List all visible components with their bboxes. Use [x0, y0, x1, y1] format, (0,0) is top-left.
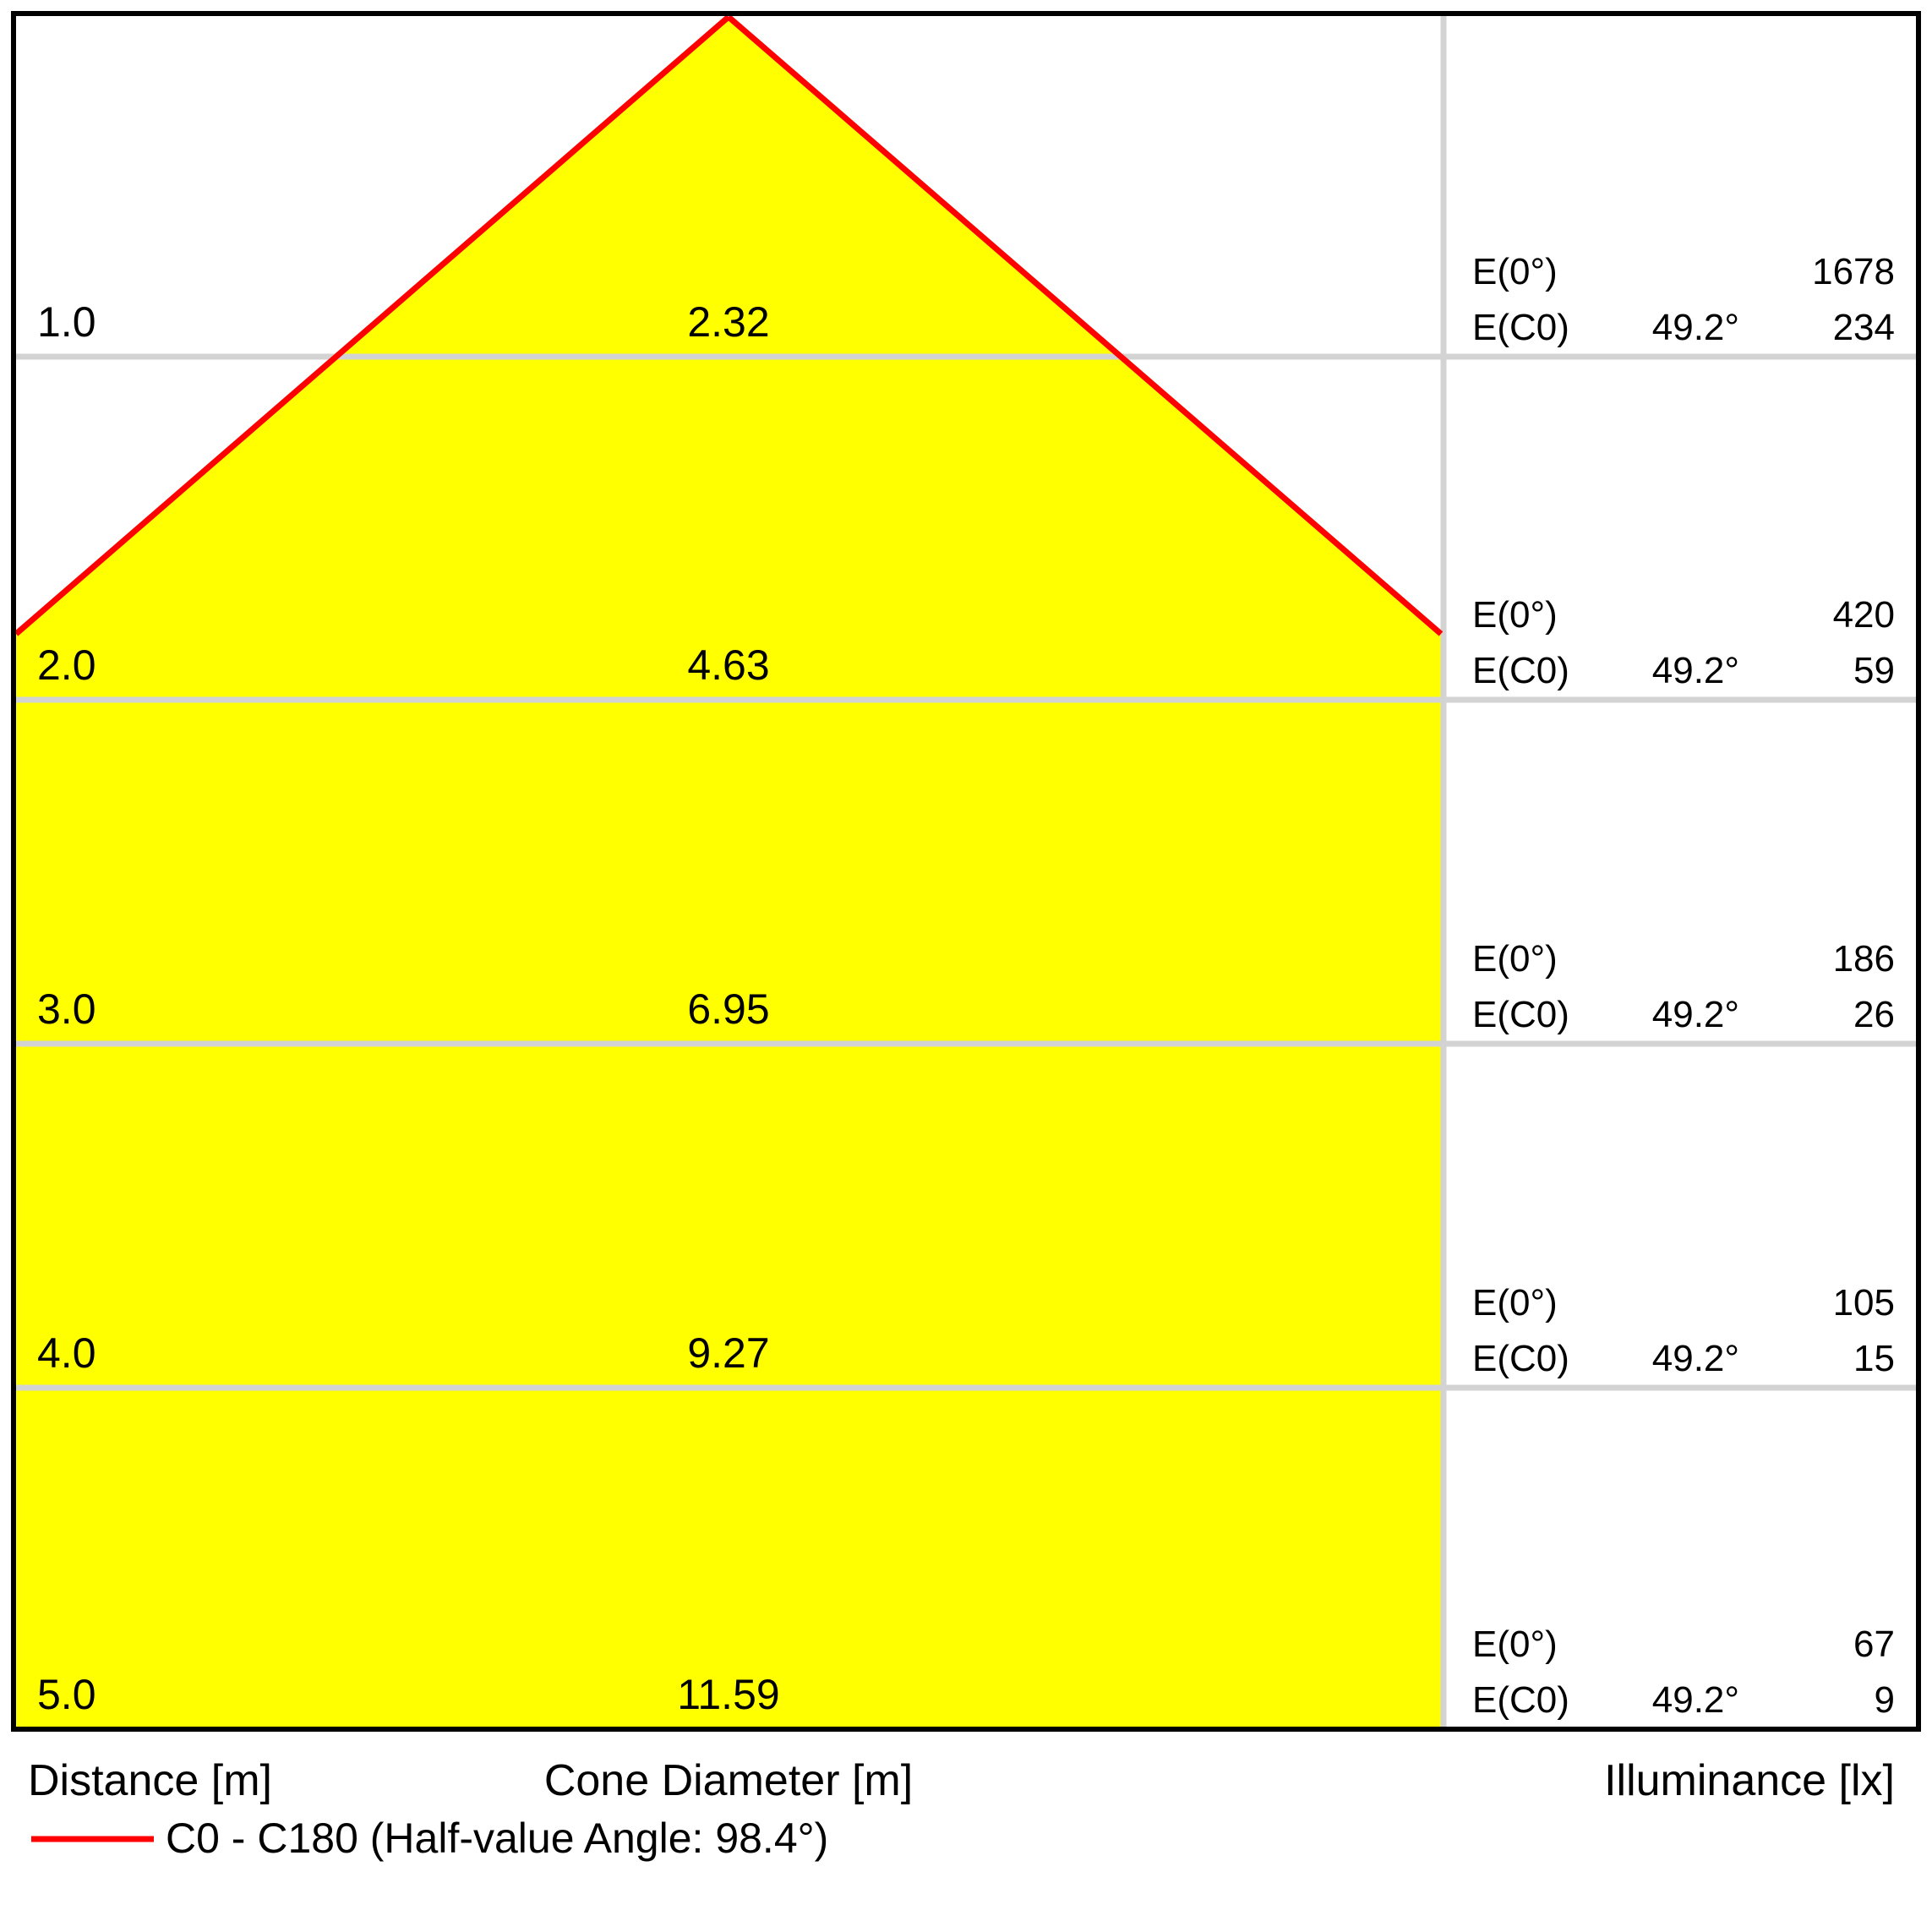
- e0-value: 186: [1833, 938, 1895, 980]
- cone-diameter-label: 6.95: [687, 985, 769, 1033]
- ec0-angle: 49.2°: [1652, 307, 1739, 348]
- ec0-value: 234: [1833, 307, 1895, 348]
- e0-label: E(0°): [1472, 1624, 1558, 1665]
- cone-diameter-label: 2.32: [687, 298, 769, 346]
- ec0-label: E(C0): [1472, 650, 1569, 691]
- distance-axis-title: Distance [m]: [28, 1756, 272, 1805]
- e0-value: 67: [1853, 1624, 1895, 1665]
- ec0-label: E(C0): [1472, 307, 1569, 348]
- distance-label: 5.0: [37, 1671, 96, 1718]
- ec0-value: 9: [1875, 1679, 1895, 1721]
- e0-label: E(0°): [1472, 1282, 1558, 1323]
- ec0-label: E(C0): [1472, 994, 1569, 1035]
- e0-value: 420: [1833, 594, 1895, 636]
- ec0-value: 15: [1853, 1338, 1895, 1379]
- cone-diameter-label: 11.59: [677, 1671, 779, 1718]
- ec0-angle: 49.2°: [1652, 1338, 1739, 1379]
- ec0-angle: 49.2°: [1652, 1679, 1739, 1721]
- distance-label: 4.0: [37, 1329, 96, 1377]
- e0-label: E(0°): [1472, 938, 1558, 980]
- ec0-label: E(C0): [1472, 1679, 1569, 1721]
- illuminance-axis-title: Illuminance [lx]: [1604, 1756, 1895, 1805]
- distance-label: 2.0: [37, 641, 96, 689]
- ec0-label: E(C0): [1472, 1338, 1569, 1379]
- e0-value: 105: [1833, 1282, 1895, 1323]
- e0-value: 1678: [1812, 251, 1895, 292]
- distance-label: 1.0: [37, 298, 96, 346]
- ec0-value: 59: [1853, 650, 1895, 691]
- cone-diameter-axis-title: Cone Diameter [m]: [544, 1756, 913, 1805]
- ec0-angle: 49.2°: [1652, 994, 1739, 1035]
- legend-label: C0 - C180 (Half-value Angle: 98.4°): [166, 1815, 828, 1862]
- ec0-angle: 49.2°: [1652, 650, 1739, 691]
- light-cone-diagram: 1.0 2.32 E(0°) 1678 E(C0) 49.2° 234 2.0 …: [0, 0, 1932, 1932]
- e0-label: E(0°): [1472, 251, 1558, 292]
- ec0-value: 26: [1853, 994, 1895, 1035]
- e0-label: E(0°): [1472, 594, 1558, 636]
- cone-diameter-label: 9.27: [687, 1329, 769, 1377]
- distance-label: 3.0: [37, 985, 96, 1033]
- cone-diameter-label: 4.63: [687, 641, 769, 689]
- cone-area: [16, 17, 1441, 1727]
